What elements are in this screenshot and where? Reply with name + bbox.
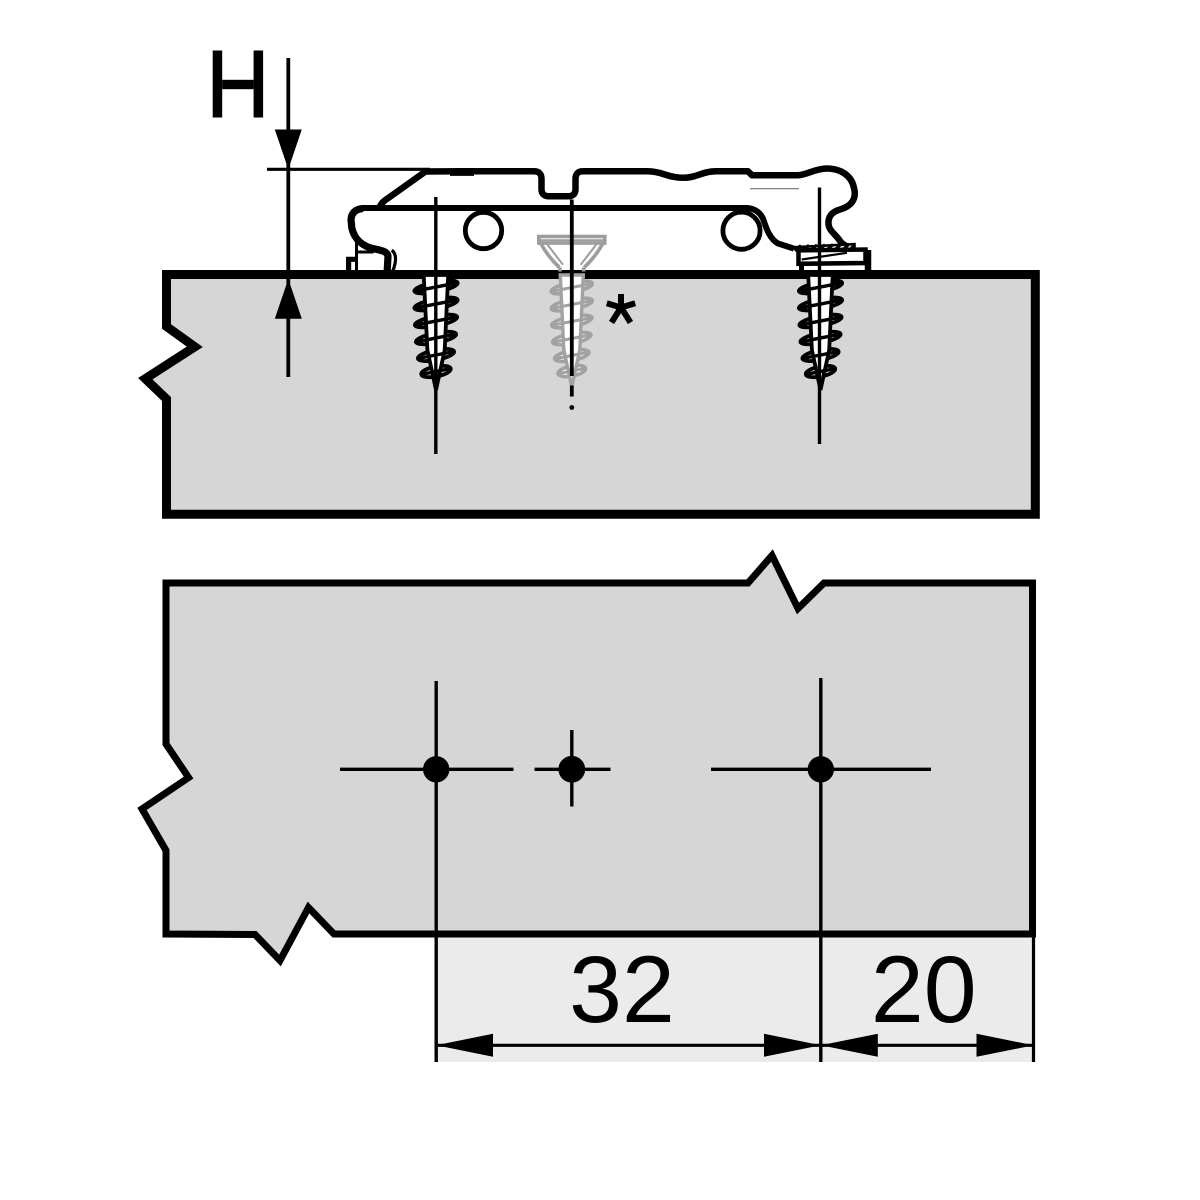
svg-text:20: 20 [871,937,977,1043]
svg-text:32: 32 [569,937,675,1043]
